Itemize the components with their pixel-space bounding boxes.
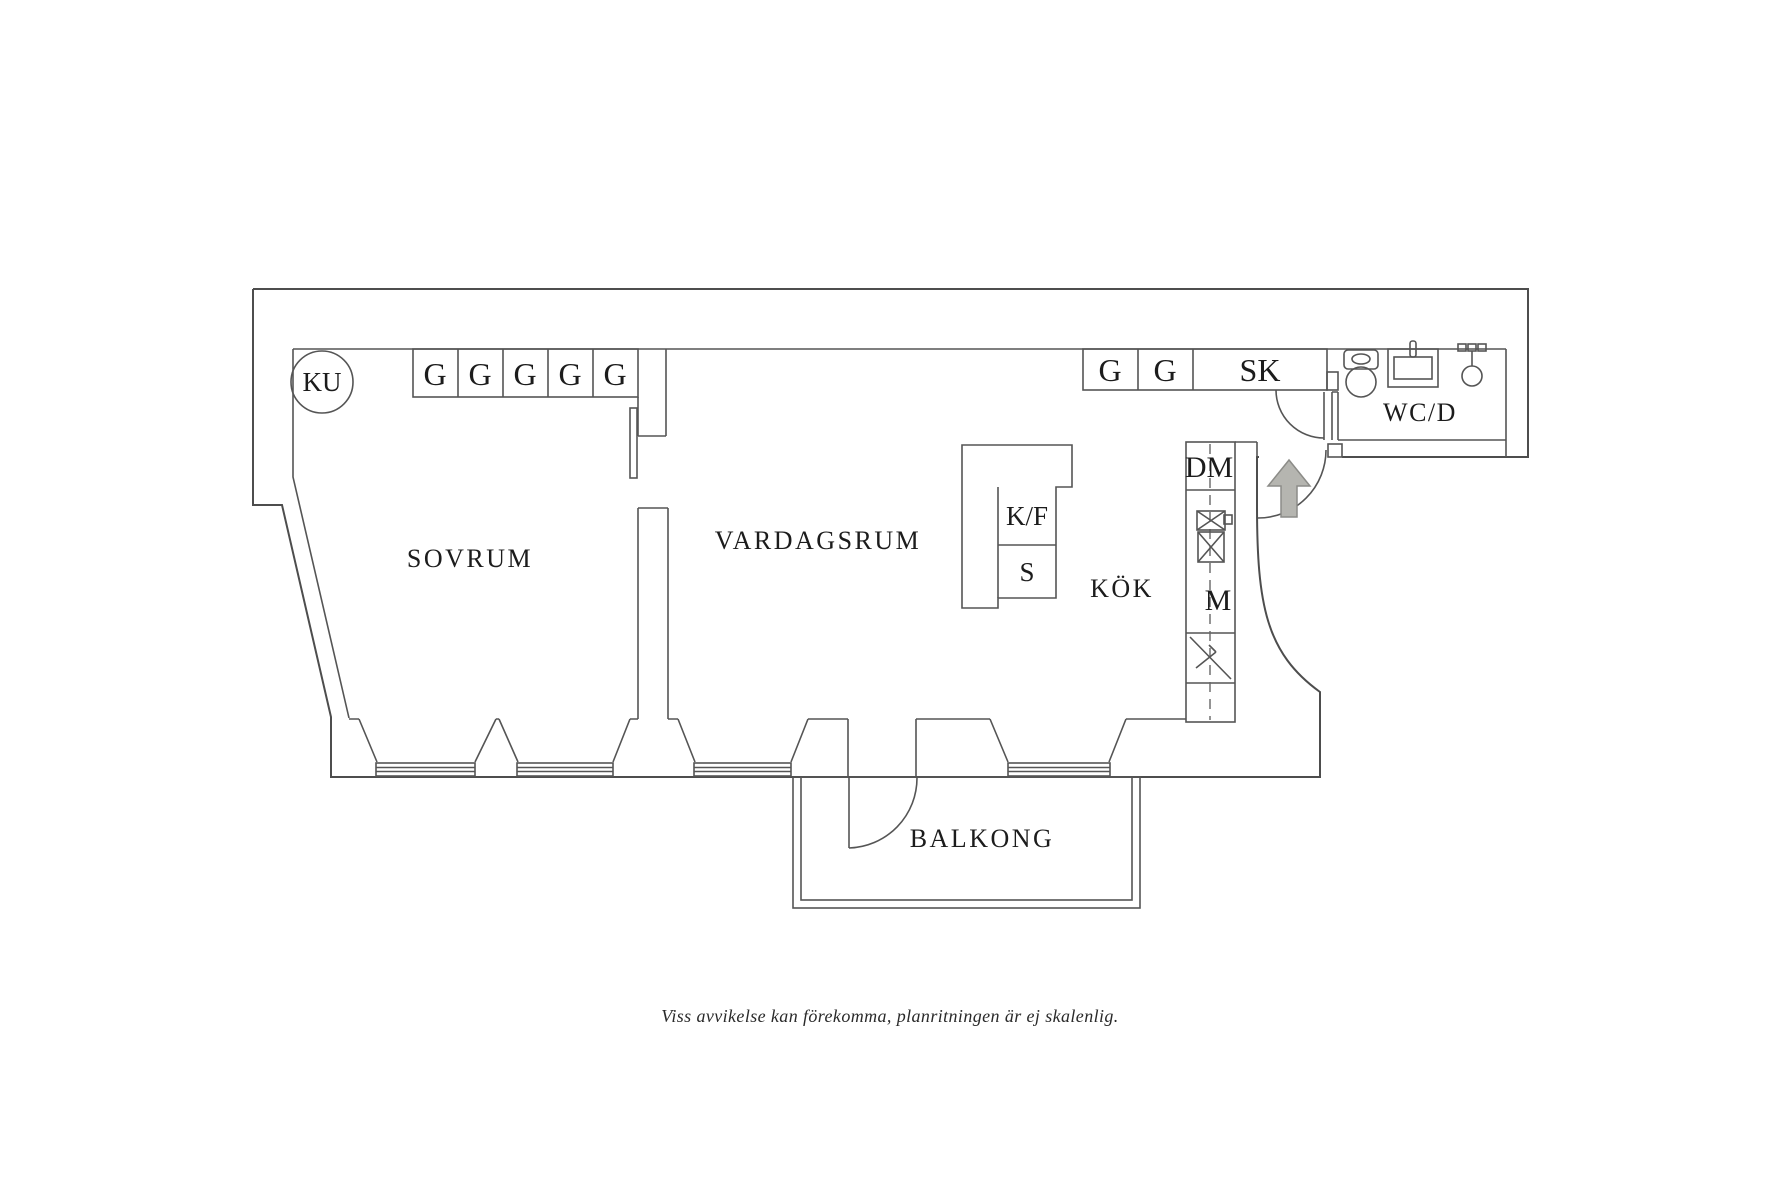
window-bedroom-2	[517, 763, 613, 776]
wardrobe-label: G	[423, 356, 446, 392]
shower-icon	[1458, 344, 1486, 386]
disclaimer-text: Viss avvikelse kan förekomma, planritnin…	[661, 1006, 1118, 1026]
front-door-frame	[1328, 444, 1342, 457]
room-label-wcd: WC/D	[1383, 398, 1457, 427]
balcony-door-arc	[849, 778, 917, 848]
wardrobe-label: G	[513, 356, 536, 392]
kitchen-sink-icon	[1197, 511, 1232, 562]
toilet-icon	[1344, 350, 1378, 397]
hall-cabinet-label: SK	[1240, 352, 1281, 388]
room-label-kok: KÖK	[1090, 574, 1154, 603]
cold-cupboard-label: KU	[303, 367, 342, 397]
entrance-arrow-icon	[1268, 460, 1310, 517]
window-bay-slants	[359, 719, 1126, 762]
bedroom-wardrobes: G G G G G	[413, 349, 638, 397]
hall-cabinets: G G SK	[1083, 349, 1338, 390]
wardrobe-label: G	[558, 356, 581, 392]
cabinet-wall-stub	[1327, 372, 1338, 390]
room-label-sovrum: SOVRUM	[407, 544, 533, 573]
microwave-label: M	[1205, 584, 1232, 617]
balcony: BALKONG	[793, 719, 1140, 908]
fridge-freezer-label: K/F	[1006, 501, 1048, 531]
kitchen-counter: DM M	[1185, 442, 1235, 722]
floor-plan-page: G G G G G KU G G SK	[0, 0, 1780, 1187]
hall-cabinet-label: G	[1098, 352, 1121, 388]
dishwasher-label: DM	[1185, 451, 1233, 484]
bedroom-livingroom-divider	[630, 349, 668, 719]
kitchen-island: K/F S	[962, 445, 1072, 608]
bathroom: WC/D	[1332, 341, 1506, 457]
washbasin-icon	[1388, 341, 1438, 387]
bathroom-door	[1276, 390, 1324, 440]
window-bedroom-1	[376, 763, 475, 776]
cold-cupboard: KU	[291, 351, 353, 413]
entry	[1235, 442, 1326, 518]
window-kitchen	[1008, 763, 1110, 776]
window-livingroom	[694, 763, 791, 776]
floor-plan-drawing: G G G G G KU G G SK	[0, 0, 1780, 1187]
room-label-balkong: BALKONG	[910, 824, 1055, 853]
wardrobe-label: G	[603, 356, 626, 392]
sliding-door-leaf	[630, 408, 637, 478]
stove-label: S	[1019, 557, 1034, 587]
hall-cabinet-label: G	[1153, 352, 1176, 388]
wardrobe-label: G	[468, 356, 491, 392]
room-label-vardagsrum: VARDAGSRUM	[715, 526, 922, 555]
